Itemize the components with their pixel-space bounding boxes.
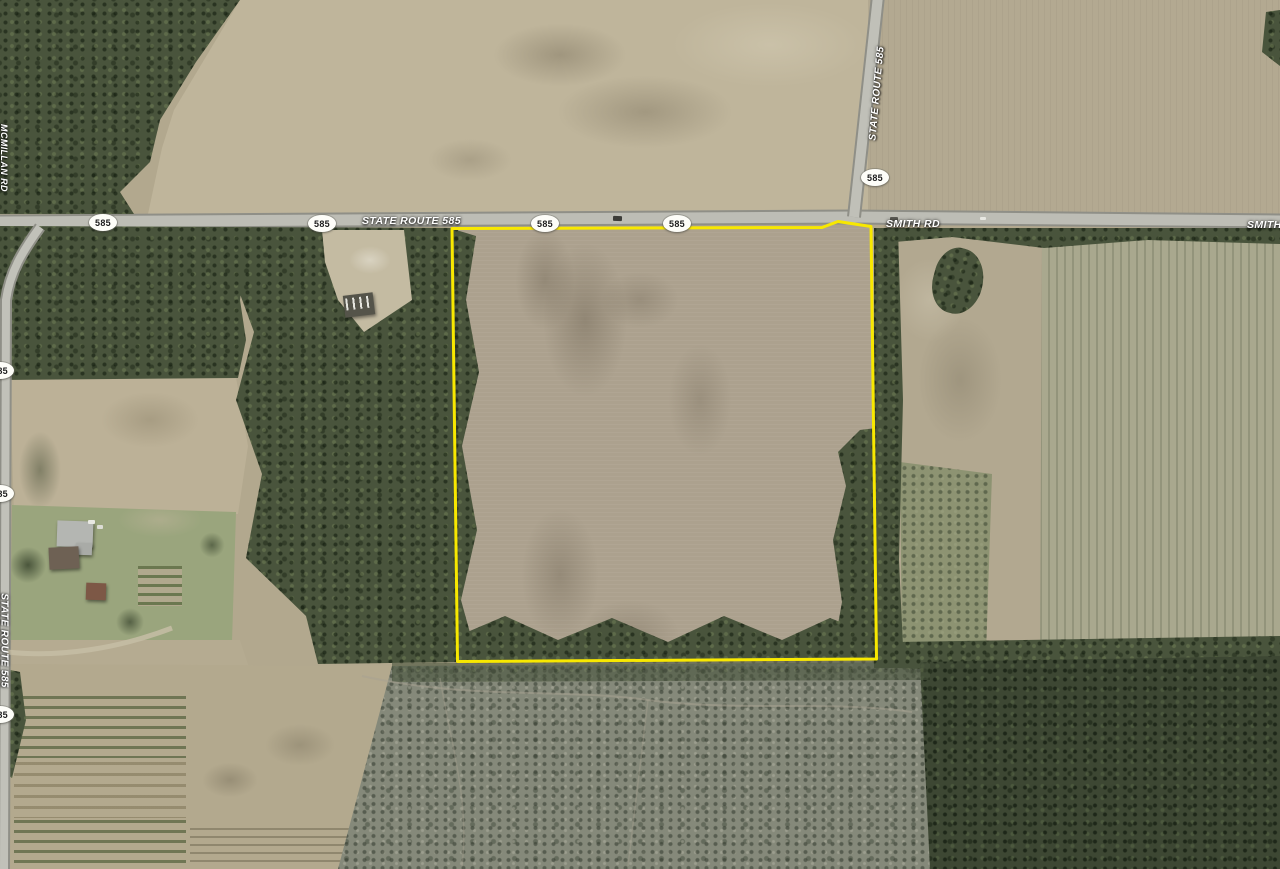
scrub-trail	[628, 700, 648, 866]
parcel-boundary[interactable]	[452, 222, 877, 662]
overlay-layer	[0, 0, 1280, 869]
driveway	[7, 628, 172, 654]
road-label-state-route-585-south: STATE ROUTE 585	[0, 591, 10, 691]
route-585-shield: 585	[89, 214, 117, 231]
map-canvas[interactable]: MCMILLAN RD STATE ROUTE 585 STATE ROUTE …	[0, 0, 1280, 869]
road-label-smith-rd-east: SMITH RD	[1247, 219, 1280, 231]
route-585-shield: 585	[663, 215, 691, 232]
road-label-smith-rd: SMITH RD	[886, 218, 940, 230]
road-label-mcmillan-rd: MCMILLAN RD	[0, 115, 9, 201]
scrub-trail	[440, 678, 464, 866]
route-585-shield: 585	[308, 215, 336, 232]
route-585-shield: 585	[861, 169, 889, 186]
road-label-state-route-585-west: STATE ROUTE 585	[362, 215, 461, 227]
route-585-shield: 585	[531, 215, 559, 232]
